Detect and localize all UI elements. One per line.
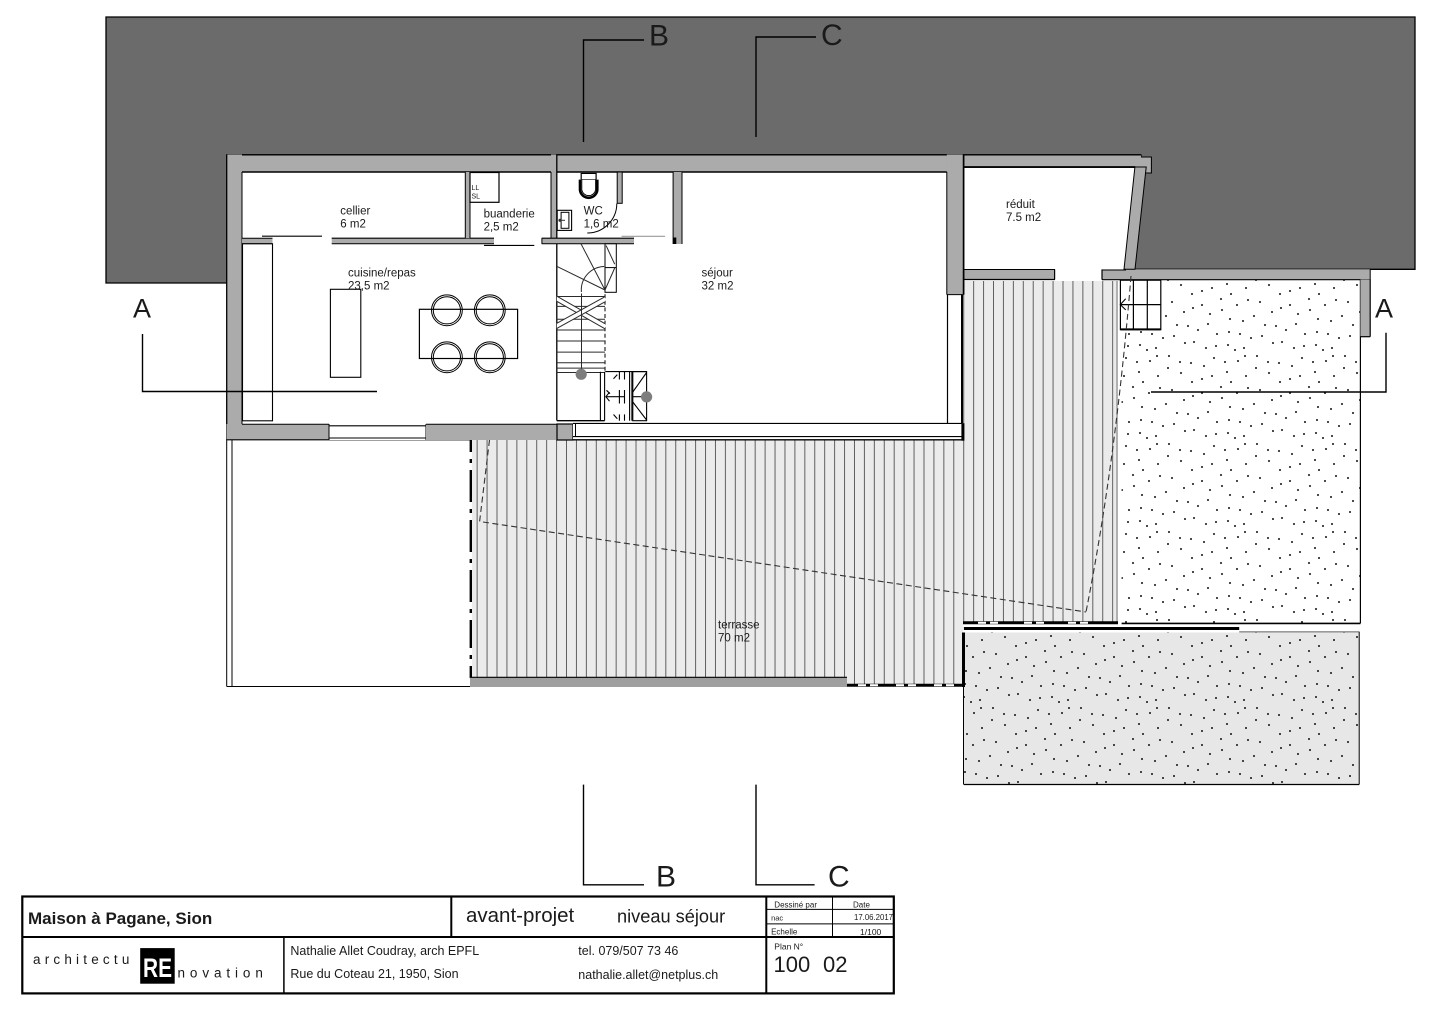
svg-text:Date: Date (853, 901, 870, 910)
svg-text:6 m2: 6 m2 (340, 219, 366, 231)
svg-text:C: C (821, 19, 843, 52)
svg-text:terrasse: terrasse (718, 620, 760, 632)
svg-text:tel. 079/507 73 46: tel. 079/507 73 46 (578, 944, 678, 958)
svg-text:WC: WC (584, 206, 603, 218)
svg-text:A: A (133, 294, 151, 324)
svg-text:avant-projet: avant-projet (466, 904, 575, 927)
svg-text:100: 100 (774, 952, 811, 977)
svg-text:Dessiné par: Dessiné par (774, 901, 817, 910)
svg-text:séjour: séjour (702, 268, 733, 280)
svg-text:1/100: 1/100 (860, 927, 882, 937)
svg-text:17.06.2017: 17.06.2017 (854, 913, 893, 922)
svg-text:SL: SL (472, 194, 481, 201)
svg-text:novation: novation (178, 966, 268, 981)
svg-text:23,5 m2: 23,5 m2 (348, 281, 390, 293)
svg-text:32 m2: 32 m2 (702, 281, 734, 293)
svg-text:02: 02 (823, 952, 847, 977)
svg-text:niveau séjour: niveau séjour (617, 907, 725, 927)
svg-text:C: C (828, 861, 850, 894)
svg-text:B: B (649, 20, 669, 53)
svg-text:nac: nac (771, 914, 783, 923)
svg-text:architectu: architectu (33, 952, 134, 967)
svg-text:buanderie: buanderie (484, 209, 535, 221)
svg-text:B: B (656, 861, 676, 894)
svg-text:RE: RE (143, 953, 172, 983)
svg-text:7.5 m2: 7.5 m2 (1006, 212, 1041, 224)
svg-text:Nathalie Allet Coudray, arch E: Nathalie Allet Coudray, arch EPFL (290, 944, 479, 958)
svg-text:LL: LL (472, 185, 480, 192)
svg-text:2,5 m2: 2,5 m2 (484, 222, 519, 234)
svg-text:Rue du Coteau 21, 1950, Sion: Rue du Coteau 21, 1950, Sion (290, 967, 458, 981)
svg-text:réduit: réduit (1006, 199, 1036, 211)
svg-text:1,6 m2: 1,6 m2 (584, 219, 619, 231)
svg-text:Maison à Pagane, Sion: Maison à Pagane, Sion (28, 909, 212, 928)
svg-text:A: A (1375, 294, 1393, 324)
svg-text:cuisine/repas: cuisine/repas (348, 268, 416, 280)
svg-text:cellier: cellier (340, 206, 370, 218)
svg-text:nathalie.allet@netplus.ch: nathalie.allet@netplus.ch (578, 968, 718, 982)
svg-text:70 m2: 70 m2 (718, 633, 750, 645)
svg-text:Plan N°: Plan N° (774, 942, 803, 952)
svg-text:Echelle: Echelle (771, 928, 798, 937)
